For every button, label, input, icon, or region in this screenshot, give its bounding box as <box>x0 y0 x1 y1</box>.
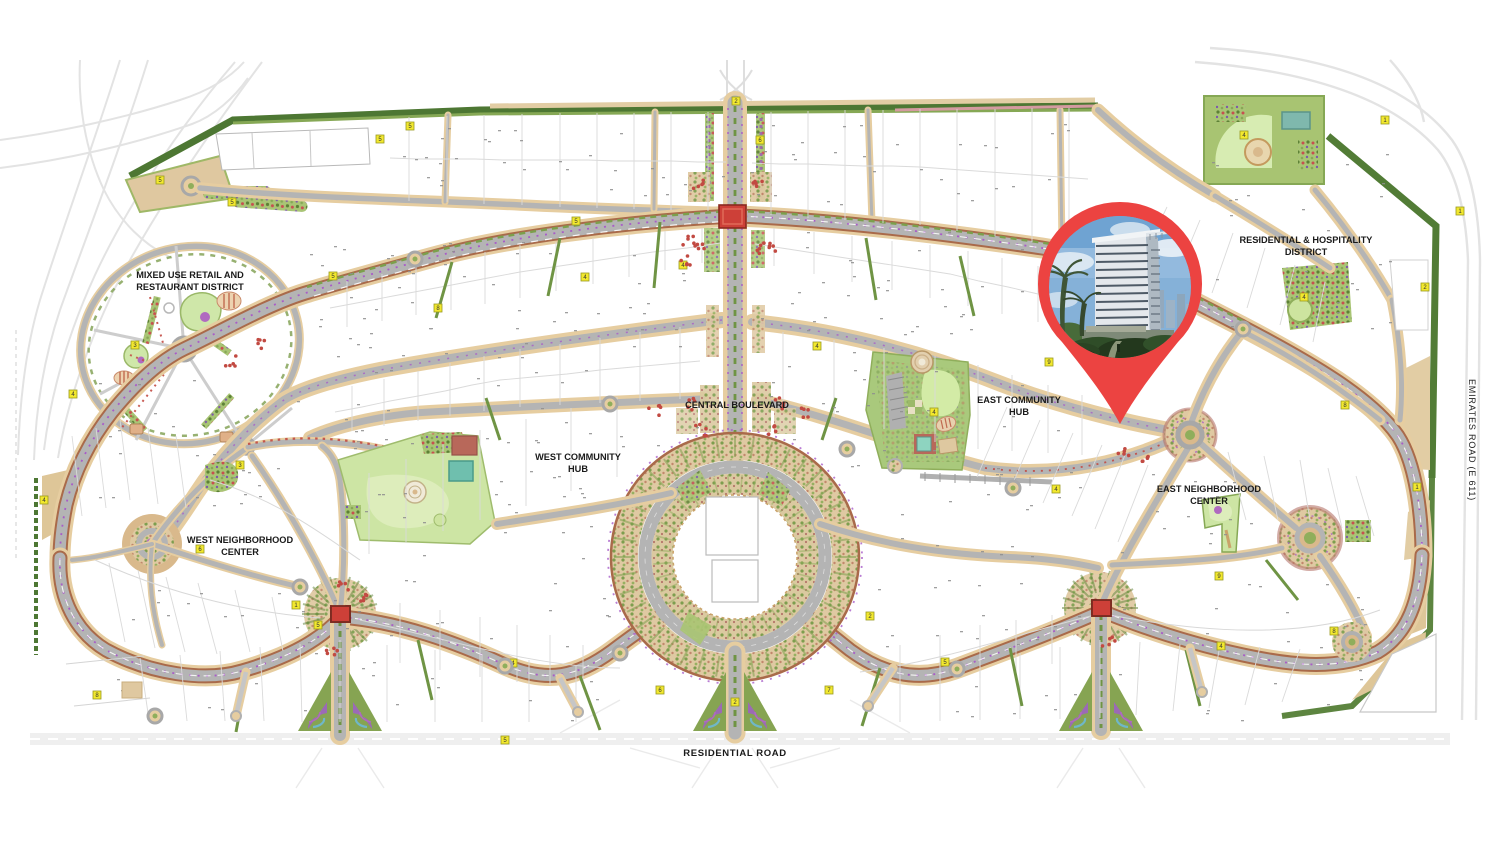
svg-text:EMIRATES ROAD (E 611): EMIRATES ROAD (E 611) <box>1467 379 1477 501</box>
svg-text:HUB: HUB <box>568 464 588 474</box>
svg-text:EAST COMMUNITY: EAST COMMUNITY <box>977 395 1061 405</box>
svg-text:CENTER: CENTER <box>1190 496 1228 506</box>
svg-text:WEST COMMUNITY: WEST COMMUNITY <box>535 452 621 462</box>
svg-text:HUB: HUB <box>1009 407 1029 417</box>
svg-text:RESIDENTIAL ROAD: RESIDENTIAL ROAD <box>683 748 786 759</box>
svg-text:MIXED USE RETAIL AND: MIXED USE RETAIL AND <box>136 270 244 280</box>
svg-text:RESIDENTIAL & HOSPITALITY: RESIDENTIAL & HOSPITALITY <box>1240 235 1373 245</box>
svg-text:WEST NEIGHBORHOOD: WEST NEIGHBORHOOD <box>187 535 294 545</box>
svg-text:DISTRICT: DISTRICT <box>1285 247 1328 257</box>
svg-text:CENTER: CENTER <box>221 547 259 557</box>
svg-text:EAST NEIGHBORHOOD: EAST NEIGHBORHOOD <box>1157 484 1261 494</box>
svg-text:RESTAURANT DISTRICT: RESTAURANT DISTRICT <box>136 282 244 292</box>
svg-text:CENTRAL BOULEVARD: CENTRAL BOULEVARD <box>685 400 789 410</box>
